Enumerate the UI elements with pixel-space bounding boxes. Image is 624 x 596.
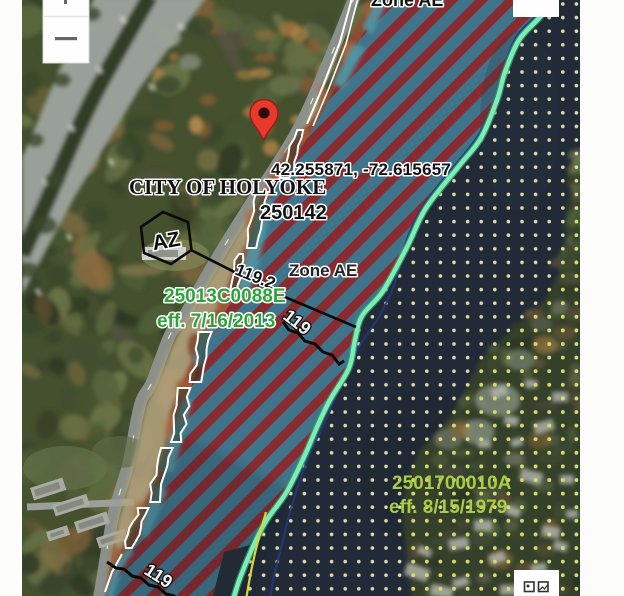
- svg-text:Zone AE: Zone AE: [289, 261, 357, 280]
- svg-text:CITY OF HOLYOKE: CITY OF HOLYOKE: [129, 175, 326, 199]
- svg-text:Zone AE: Zone AE: [371, 0, 443, 10]
- svg-text:25013C0088E: 25013C0088E: [164, 286, 286, 307]
- svg-text:eff. 7/16/2013: eff. 7/16/2013: [157, 311, 275, 332]
- svg-text:250142: 250142: [260, 202, 327, 224]
- svg-text:AZ: AZ: [150, 228, 182, 256]
- svg-text:eff. 8/15/1979: eff. 8/15/1979: [389, 497, 507, 518]
- svg-text:2501700010A: 2501700010A: [392, 473, 512, 494]
